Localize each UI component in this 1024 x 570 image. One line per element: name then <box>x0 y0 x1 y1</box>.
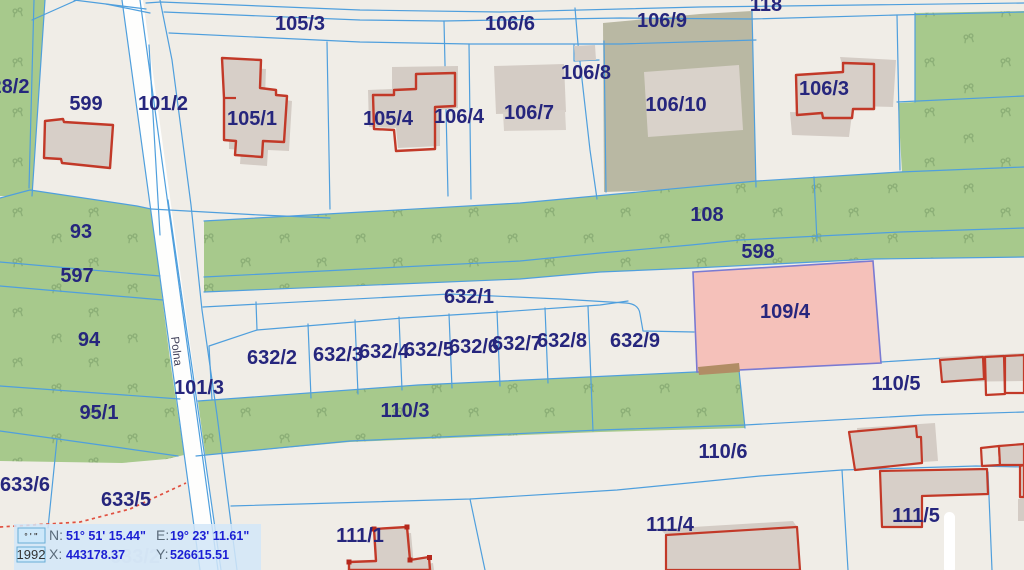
svg-text:E:: E: <box>156 527 169 543</box>
svg-text:632/4: 632/4 <box>359 341 410 363</box>
svg-text:526615.51: 526615.51 <box>170 548 229 562</box>
svg-text:Y:: Y: <box>156 546 168 562</box>
svg-text:106/9: 106/9 <box>637 10 687 32</box>
svg-text:106/10: 106/10 <box>645 94 706 116</box>
svg-text:101/2: 101/2 <box>138 93 188 115</box>
svg-text:632/3: 632/3 <box>313 344 363 366</box>
svg-text:599: 599 <box>69 93 102 115</box>
svg-text:632/9: 632/9 <box>610 330 660 352</box>
svg-text:° ' ": ° ' " <box>24 532 38 541</box>
svg-text:105/4: 105/4 <box>363 108 414 130</box>
svg-text:28/2: 28/2 <box>0 76 29 98</box>
svg-text:111/4: 111/4 <box>646 514 695 536</box>
svg-text:105/3: 105/3 <box>275 13 325 35</box>
svg-text:95/1: 95/1 <box>80 402 119 424</box>
svg-text:N:: N: <box>49 527 63 543</box>
svg-text:101/3: 101/3 <box>174 377 224 399</box>
svg-text:110/3: 110/3 <box>381 400 430 422</box>
svg-text:109/4: 109/4 <box>760 301 811 323</box>
svg-text:X:: X: <box>49 546 62 562</box>
svg-text:443178.37: 443178.37 <box>66 548 125 562</box>
svg-text:106/4: 106/4 <box>434 106 485 128</box>
svg-text:597: 597 <box>60 265 93 287</box>
svg-text:1992: 1992 <box>17 547 46 562</box>
svg-text:632/2: 632/2 <box>247 347 297 369</box>
svg-text:93: 93 <box>70 221 92 243</box>
svg-text:598: 598 <box>741 241 774 263</box>
svg-text:108: 108 <box>690 204 723 226</box>
svg-text:106/6: 106/6 <box>485 13 535 35</box>
svg-text:111/5: 111/5 <box>892 505 940 527</box>
svg-text:94: 94 <box>78 329 101 351</box>
svg-text:110/5: 110/5 <box>872 373 921 395</box>
svg-text:632/1: 632/1 <box>444 286 494 308</box>
svg-text:110/6: 110/6 <box>699 441 748 463</box>
svg-text:118: 118 <box>750 0 782 16</box>
svg-text:633/5: 633/5 <box>101 489 151 511</box>
svg-text:106/7: 106/7 <box>504 102 554 124</box>
svg-text:111/1: 111/1 <box>336 525 384 547</box>
svg-text:632/7: 632/7 <box>492 333 542 355</box>
svg-text:632/5: 632/5 <box>404 339 454 361</box>
svg-text:632/8: 632/8 <box>537 330 587 352</box>
svg-text:106/3: 106/3 <box>799 78 849 100</box>
svg-text:633/6: 633/6 <box>0 474 50 496</box>
svg-text:106/8: 106/8 <box>561 62 611 84</box>
svg-text:105/1: 105/1 <box>227 108 277 130</box>
svg-text:51° 51' 15.44": 51° 51' 15.44" <box>66 529 146 543</box>
svg-text:19° 23' 11.61": 19° 23' 11.61" <box>170 529 249 543</box>
